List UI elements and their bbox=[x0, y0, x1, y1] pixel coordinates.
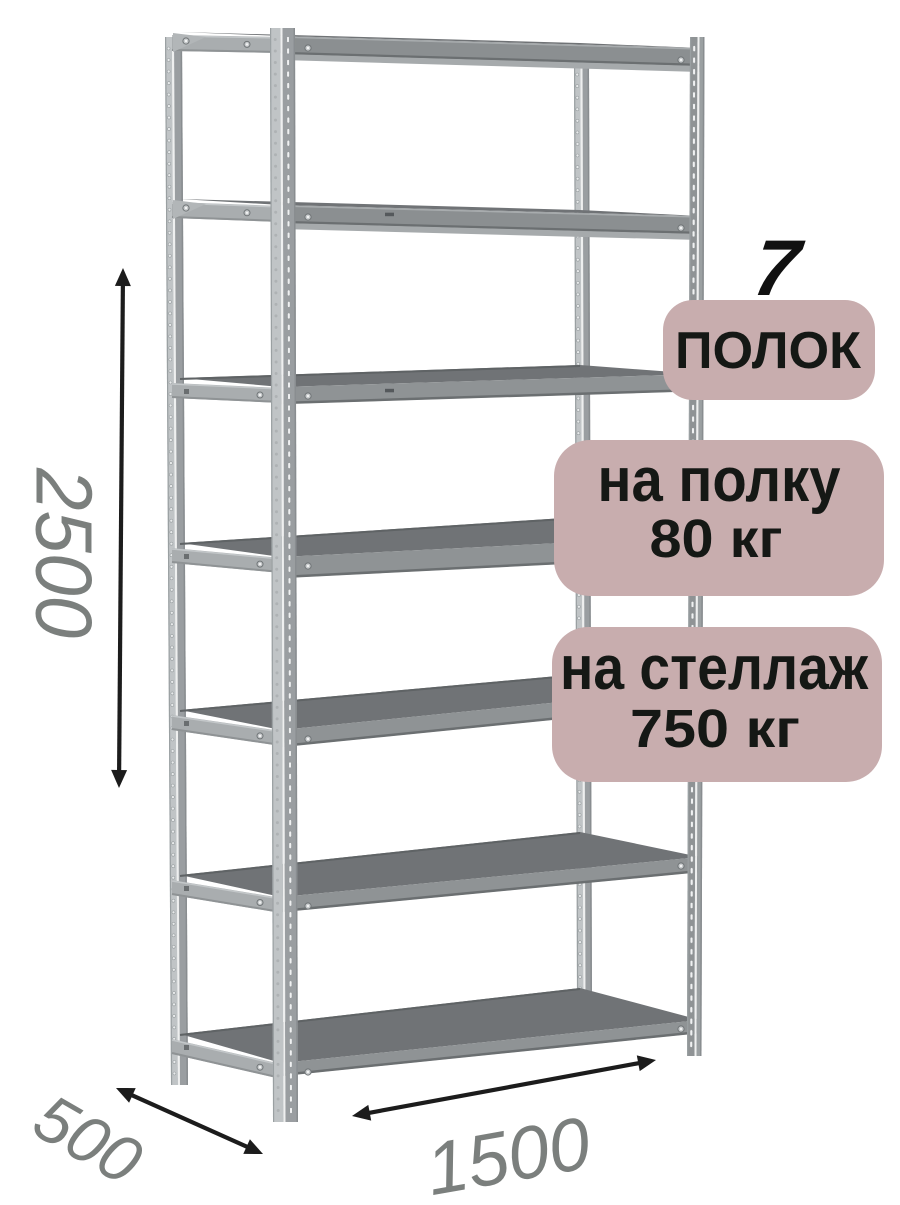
svg-text:750 кг: 750 кг bbox=[630, 699, 800, 759]
svg-text:на полку: на полку bbox=[598, 446, 841, 515]
svg-text:2500: 2500 bbox=[20, 467, 109, 638]
svg-text:80 кг: 80 кг bbox=[650, 509, 783, 569]
svg-text:на стеллаж: на стеллаж bbox=[560, 634, 869, 703]
svg-text:ПОЛОК: ПОЛОК bbox=[675, 322, 861, 380]
